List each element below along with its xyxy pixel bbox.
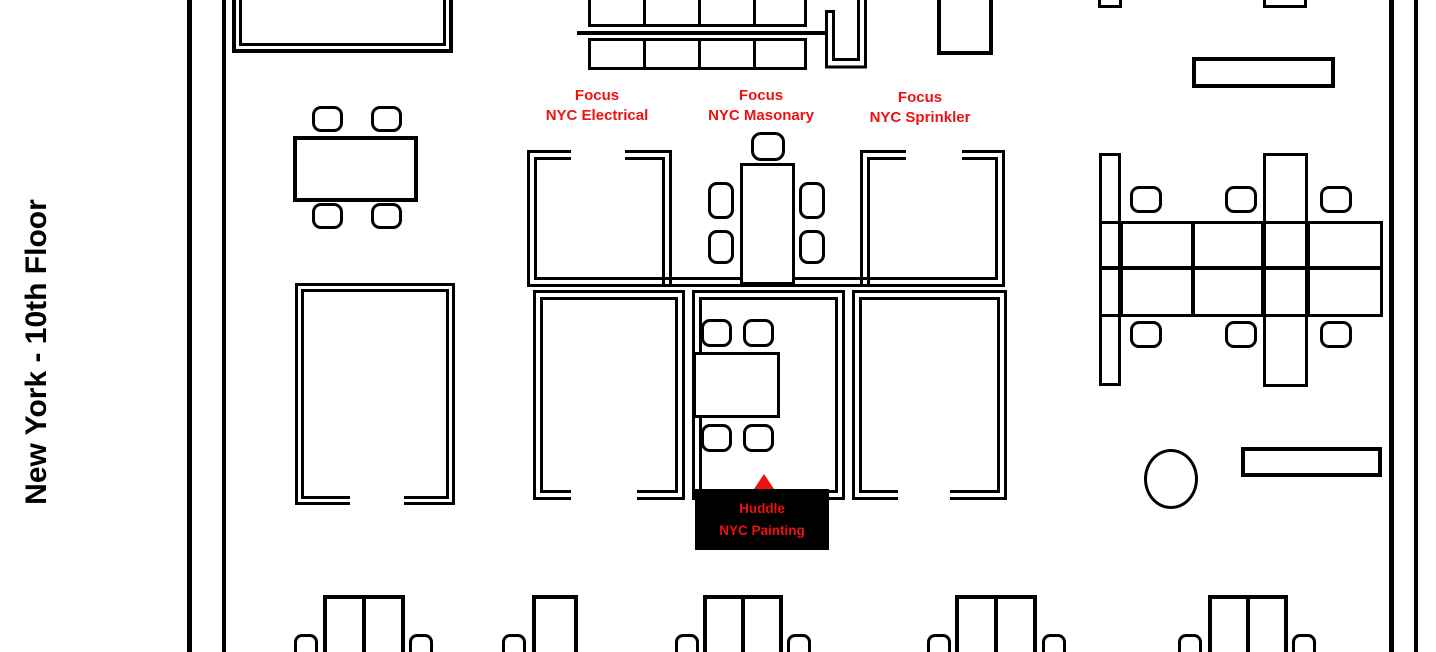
label-line: Focus: [676, 86, 846, 106]
wall-right-outer: [1414, 0, 1418, 652]
badge-line: NYC Painting: [719, 520, 805, 542]
wall-left-outer: [187, 0, 192, 652]
chair: [751, 132, 785, 161]
chair: [701, 319, 732, 347]
door-gap: [571, 488, 637, 502]
label-line: Focus: [835, 88, 1005, 108]
chair: [1320, 186, 1352, 213]
chair: [1320, 321, 1352, 348]
desk-grid: [1099, 221, 1383, 317]
desk-divider: [741, 595, 745, 652]
desk-cell: [753, 38, 807, 70]
chair: [502, 634, 526, 652]
room-top-left: [232, 0, 453, 53]
chair: [1292, 634, 1316, 652]
label-line: Focus: [512, 86, 682, 106]
chair: [1225, 321, 1257, 348]
chair: [312, 203, 343, 229]
door-gap: [350, 494, 404, 507]
chair: [1178, 634, 1202, 652]
chair: [1130, 186, 1162, 213]
round-table: [1144, 449, 1198, 509]
chair: [371, 106, 402, 132]
desk-divider: [994, 595, 998, 652]
chair: [743, 319, 774, 347]
desk-divider: [362, 595, 366, 652]
room-focus-sprinkler[interactable]: [860, 150, 1005, 287]
door-gap: [906, 148, 962, 162]
room-focus-electrical[interactable]: [527, 150, 672, 287]
huddle-table: [693, 352, 780, 418]
room-row2-left[interactable]: [533, 290, 685, 500]
chair: [799, 182, 825, 219]
chair: [294, 634, 318, 652]
desk-cell: [643, 38, 701, 70]
chair: [927, 634, 951, 652]
desk: [532, 595, 578, 652]
chair: [743, 424, 774, 452]
chair: [1130, 321, 1162, 348]
cabinet: [1192, 57, 1335, 88]
chair: [799, 230, 825, 264]
label-line: NYC Masonary: [676, 106, 846, 126]
label-focus-masonary[interactable]: Focus NYC Masonary: [676, 86, 846, 126]
label-line: NYC Sprinkler: [835, 108, 1005, 128]
desk-cell: [753, 0, 807, 27]
desk-cell: [643, 0, 701, 27]
label-focus-sprinkler[interactable]: Focus NYC Sprinkler: [835, 88, 1005, 128]
privacy-panel-stub: [1263, 0, 1307, 8]
floor-plan: New York - 10th Floor Focus NYC Electric…: [0, 0, 1436, 652]
door-gap: [571, 148, 625, 162]
floor-title: New York - 10th Floor: [20, 167, 58, 537]
desk-cell: [588, 0, 646, 27]
door-gap: [898, 488, 950, 502]
wall-left-inner: [222, 0, 226, 652]
desk-cell: [698, 0, 756, 27]
badge-huddle-painting[interactable]: Huddle NYC Painting: [695, 489, 829, 550]
chair: [708, 182, 734, 219]
desk-cell: [698, 38, 756, 70]
cabinet: [937, 0, 993, 55]
chair: [409, 634, 433, 652]
chair: [371, 203, 402, 229]
room-row2-right[interactable]: [852, 290, 1007, 500]
meeting-table: [293, 136, 418, 202]
cabinet: [1241, 447, 1382, 477]
chair: [1042, 634, 1066, 652]
room-left-middle[interactable]: [295, 283, 455, 505]
wall-right-inner: [1389, 0, 1394, 652]
label-focus-electrical[interactable]: Focus NYC Electrical: [512, 86, 682, 126]
badge-line: Huddle: [739, 498, 785, 520]
chair: [708, 230, 734, 264]
chair: [312, 106, 343, 132]
u-partition-wall: [820, 0, 872, 76]
privacy-panel-stub: [1098, 0, 1122, 8]
desk-cell: [588, 38, 646, 70]
label-line: NYC Electrical: [512, 106, 682, 126]
chair: [675, 634, 699, 652]
chair: [787, 634, 811, 652]
chair: [701, 424, 732, 452]
desk-bank-divider-line: [577, 31, 827, 35]
room-top-left-inner: [239, 0, 446, 46]
chair: [1225, 186, 1257, 213]
desk-divider: [1246, 595, 1250, 652]
room-marker-triangle: [754, 474, 774, 489]
masonary-table: [740, 163, 795, 285]
